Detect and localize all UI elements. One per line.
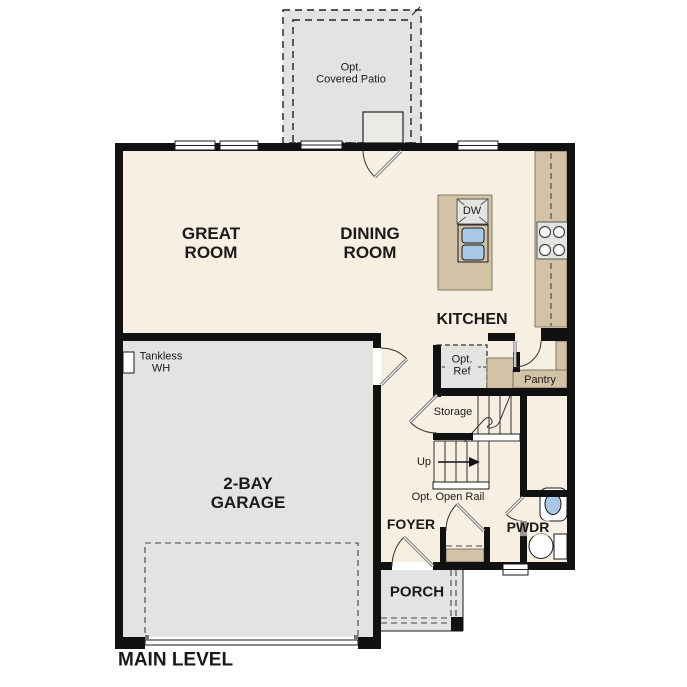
handrail-mid [472,434,520,441]
window [458,141,498,150]
pwdr-label: PWDR [507,520,550,536]
tankless-wh-label: Tankless WH [140,351,183,376]
level-title: MAIN LEVEL [118,649,233,670]
patio-label: Opt. Covered Patio [316,62,386,87]
closet-shelf [446,549,484,562]
window [175,141,215,150]
toilet [529,534,567,560]
storage-label: Storage [434,406,473,418]
floor-plan: Opt. Covered Patio GREAT ROOM DINING ROO… [0,0,687,687]
great-room-label: GREAT ROOM [182,224,240,262]
water-heater [123,352,134,373]
mud-counter [487,358,515,390]
pantry-label: Pantry [524,374,556,386]
dining-room-label: DINING ROOM [340,224,400,262]
opt-ref-label: Opt. Ref [452,354,473,379]
pwdr-window [503,564,528,575]
dishwasher-label: DW [462,205,482,217]
pantry-shelf-right [556,341,567,371]
opt-open-rail-label: Opt. Open Rail [412,491,485,503]
window [220,141,258,150]
kitchen-label: KITCHEN [436,311,507,329]
patio-step [363,112,403,143]
porch-label: PORCH [390,585,444,602]
porch-post [451,617,463,631]
up-label: Up [417,456,431,468]
handrail-open-rail [433,482,489,489]
sink-bowl-bottom [462,245,484,260]
floor-plan-drawing [0,0,687,687]
foyer-label: FOYER [387,517,435,533]
window [301,141,342,149]
garage-label: 2-BAY GARAGE [211,474,286,512]
sink-bowl-top [462,228,484,243]
